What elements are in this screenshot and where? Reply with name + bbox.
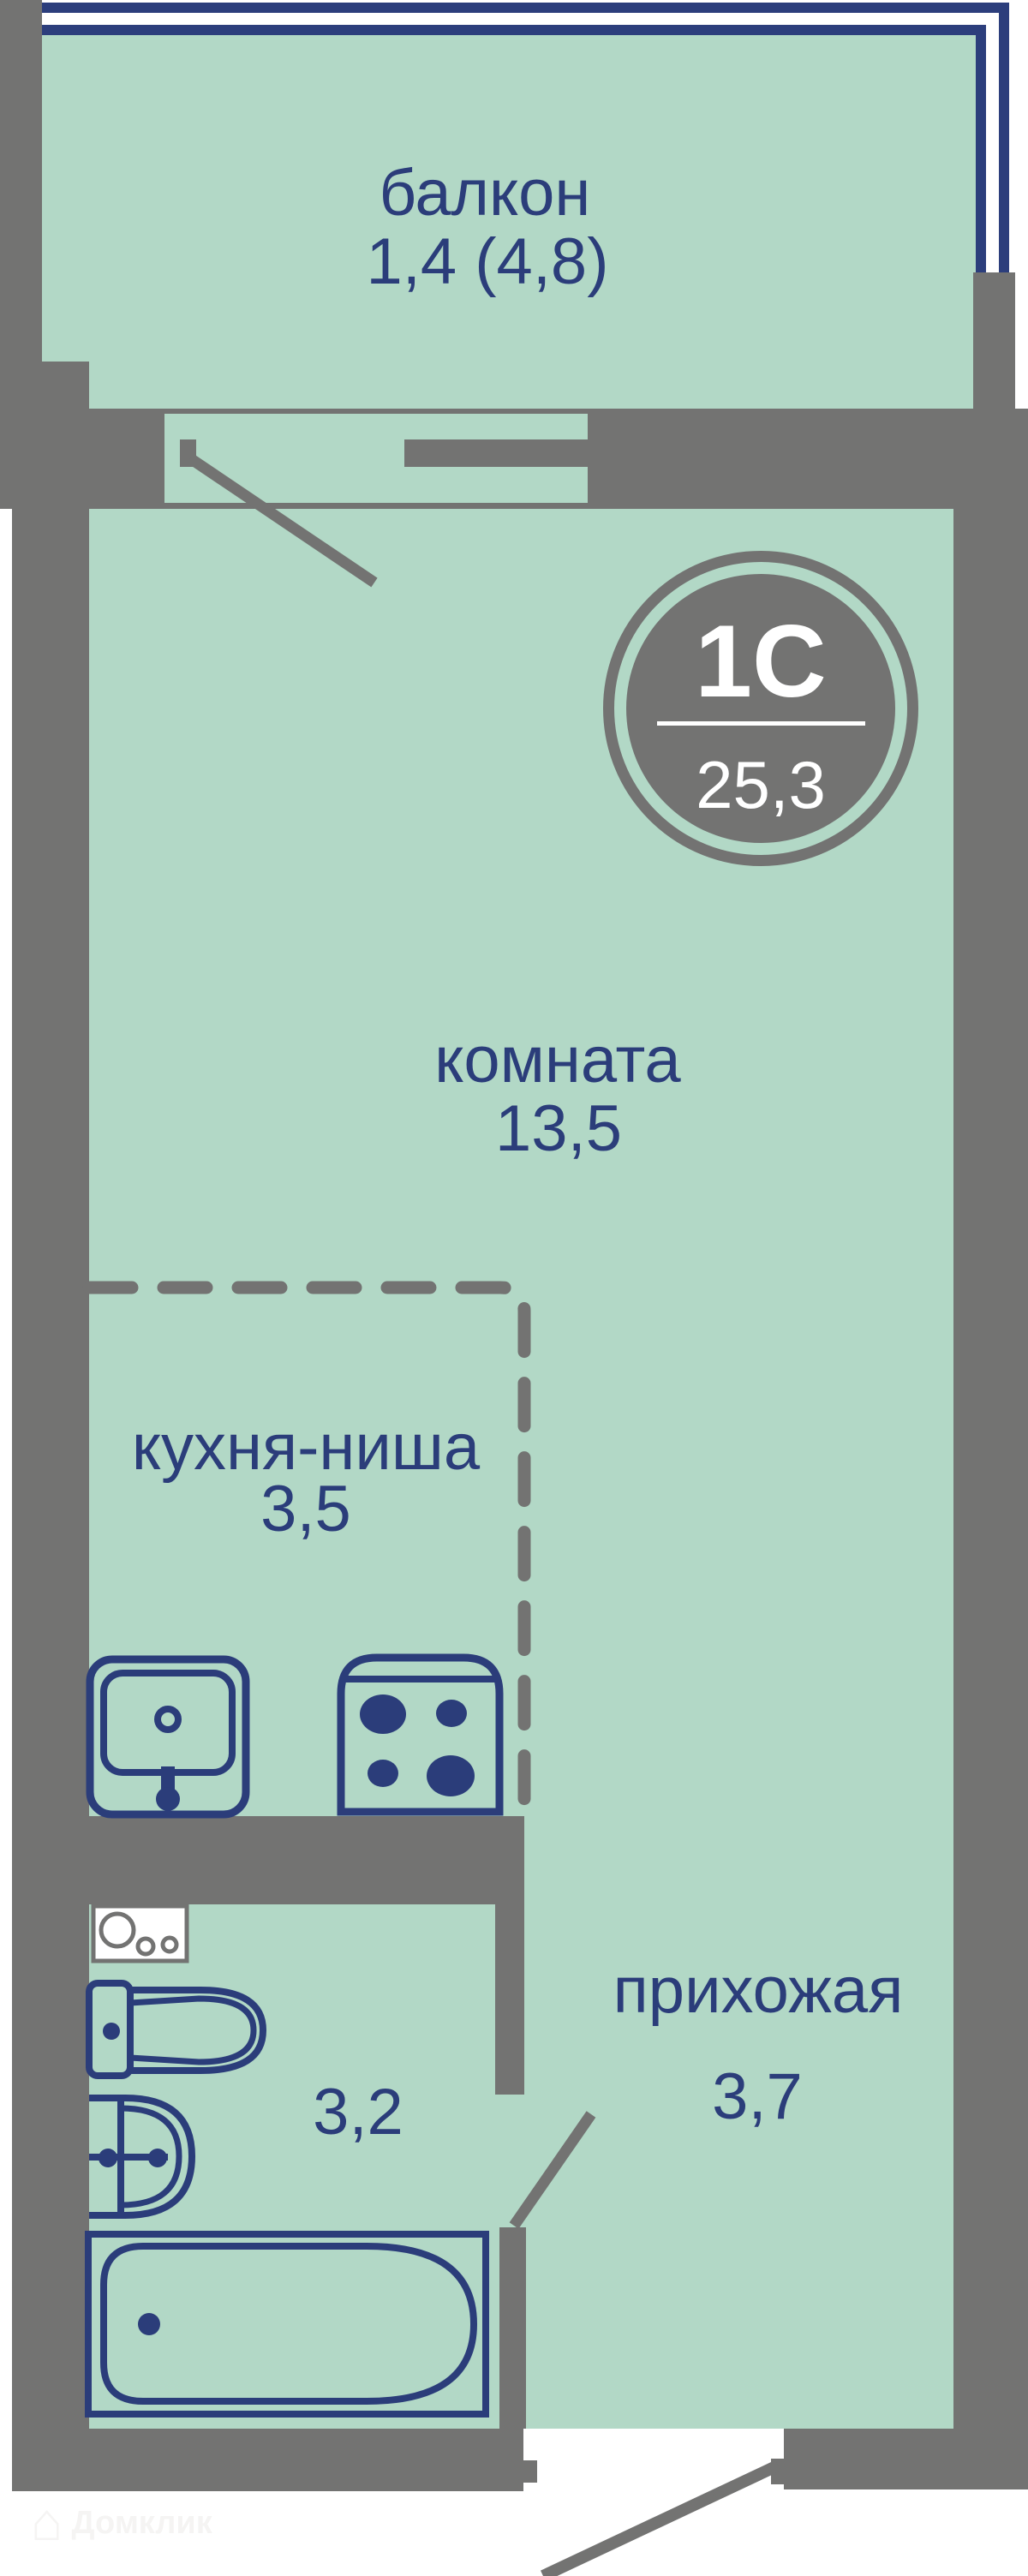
bathroom-wall-upper-stub	[495, 1904, 524, 2095]
living-room-label: комната	[434, 1028, 680, 1093]
entrance-jamb-right	[771, 2459, 784, 2484]
balcony-railing-right-outer	[999, 3, 1009, 272]
entrance-door-swing	[543, 2465, 778, 2576]
living-room-area: 13,5	[495, 1097, 622, 1162]
entrance-jamb-left	[523, 2460, 537, 2483]
balcony-railing-top-inner	[42, 25, 986, 35]
kitchen-niche-area: 3,5	[260, 1477, 351, 1542]
left-exterior-wall	[12, 509, 89, 2429]
bottom-wall-right	[784, 2429, 1028, 2489]
house-logo-icon: ⌂	[31, 2496, 63, 2549]
right-exterior-wall	[953, 509, 1028, 2489]
watermark-brand: Домклик	[71, 2505, 212, 2542]
apartment-type-label: 1С	[695, 610, 826, 713]
balcony-railing-top-outer	[42, 3, 1009, 13]
balcony-step-wall	[42, 362, 89, 409]
hallway-label: прихожая	[613, 1958, 904, 2023]
badge-divider-line	[657, 721, 865, 726]
bottom-wall-left	[12, 2429, 523, 2491]
floor-plan: 1С 25,3 балкон 1,4 (4,8) комната 13,5 ку…	[0, 0, 1028, 2576]
right-wall-balcony-level	[973, 272, 1015, 409]
balcony-door-jamb	[180, 439, 196, 467]
balcony-label: балкон	[380, 161, 591, 226]
apartment-total-area: 25,3	[696, 751, 826, 818]
balcony-railing-right-inner	[976, 25, 986, 272]
bathroom-wall-lower-stub	[499, 2227, 526, 2429]
window-sill-bar	[404, 439, 588, 467]
balcony-area: 1,4 (4,8)	[366, 230, 608, 295]
watermark: ⌂ Домклик	[31, 2496, 212, 2549]
balcony-left-wall	[0, 0, 42, 409]
hallway-area: 3,7	[712, 2065, 803, 2130]
kitchen-niche-label: кухня-ниша	[132, 1415, 480, 1480]
bathroom-area: 3,2	[313, 2080, 403, 2145]
kitchen-bathroom-wall	[89, 1816, 524, 1904]
